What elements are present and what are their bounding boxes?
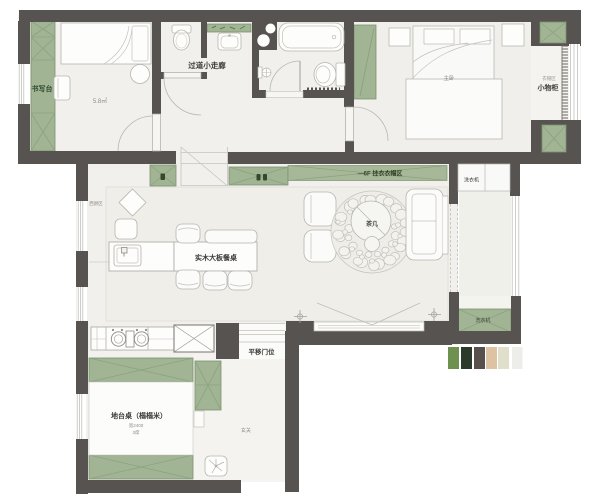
- svg-text:地台桌（榻榻米）: 地台桌（榻榻米）: [111, 411, 167, 420]
- svg-text:实木大板餐桌: 实木大板餐桌: [195, 253, 237, 262]
- svg-text:茶几: 茶几: [365, 220, 378, 228]
- svg-text:—6F 挂衣衣帽区: —6F 挂衣衣帽区: [358, 170, 403, 178]
- svg-text:玄关: 玄关: [241, 427, 251, 434]
- svg-text:3席: 3席: [132, 429, 140, 436]
- svg-text:主卧: 主卧: [443, 74, 455, 82]
- svg-text:宽2400: 宽2400: [129, 422, 144, 429]
- svg-text:洗衣机: 洗衣机: [475, 317, 490, 324]
- svg-text:书写台: 书写台: [32, 84, 53, 93]
- svg-text:5.8㎡: 5.8㎡: [93, 97, 107, 105]
- svg-text:过道小走廊: 过道小走廊: [188, 60, 226, 70]
- svg-text:小物柜: 小物柜: [537, 83, 559, 92]
- svg-text:洗衣机: 洗衣机: [464, 177, 479, 184]
- svg-text:衣帽区: 衣帽区: [542, 75, 556, 82]
- svg-text:平移门位: 平移门位: [249, 347, 276, 356]
